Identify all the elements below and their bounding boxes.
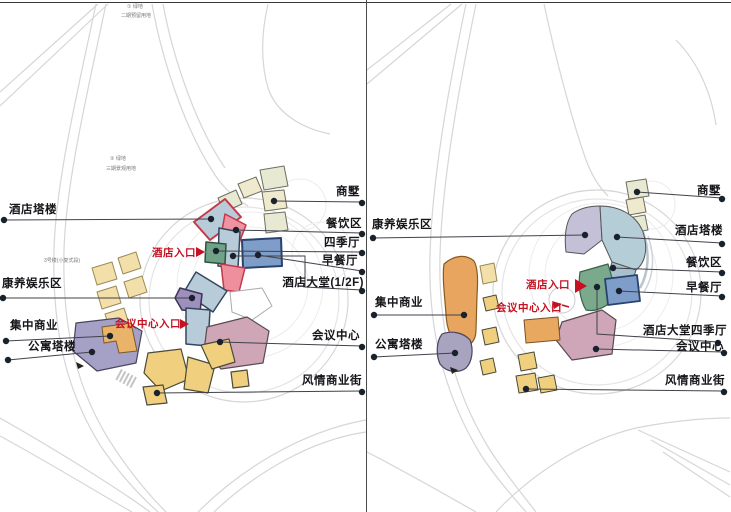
label-commercial-street: 风情商业街 bbox=[302, 375, 362, 387]
wellness-zone-building bbox=[565, 206, 602, 254]
street-shop bbox=[518, 352, 537, 371]
label-hotel-tower: 酒店塔楼 bbox=[675, 225, 723, 237]
label-wellness-zone: 康养娱乐区 bbox=[372, 219, 432, 231]
future-plot-outline bbox=[230, 288, 272, 320]
label-commercial-street: 风情商业街 bbox=[665, 375, 725, 387]
label-hotel-lobby-four-season: 酒店大堂四季厅 bbox=[643, 325, 727, 337]
breakfast-hall-building bbox=[242, 238, 282, 268]
site-note-line2: 三期景观用地 bbox=[106, 166, 136, 173]
hotel-pink-wing bbox=[221, 264, 245, 292]
label-central-commerce: 集中商业 bbox=[10, 320, 58, 332]
label-hotel-entrance: 酒店入口 bbox=[526, 277, 570, 292]
street-shop bbox=[480, 263, 497, 284]
street-shop bbox=[480, 358, 496, 375]
road-network bbox=[367, 4, 730, 512]
street-shop bbox=[144, 349, 189, 391]
site-note-line1: ② 绿地 bbox=[110, 156, 126, 163]
villa-block bbox=[626, 197, 646, 215]
wellness-villa bbox=[124, 276, 147, 298]
label-dining-zone: 餐饮区 bbox=[686, 257, 722, 269]
villa-block bbox=[238, 177, 262, 198]
label-conference-center: 会议中心 bbox=[676, 341, 724, 353]
label-conference-entrance: 会议中心入口 bbox=[496, 300, 562, 315]
villa-block bbox=[260, 166, 288, 190]
label-breakfast-hall: 早餐厅 bbox=[322, 255, 358, 267]
label-villas: 商墅 bbox=[697, 185, 721, 197]
label-wellness-note: 3号楼(小复式段) bbox=[44, 258, 80, 265]
label-four-season-hall: 四季厅 bbox=[324, 237, 360, 249]
street-shop bbox=[231, 370, 249, 388]
wellness-villa bbox=[118, 252, 141, 274]
wellness-villa bbox=[92, 262, 117, 285]
label-central-commerce: 集中商业 bbox=[375, 297, 423, 309]
top-note-line1: ① 绿地 bbox=[127, 4, 143, 11]
site-plan-left: 酒店塔楼 3号楼(小复式段) 康养娱乐区 集中商业 公寓塔楼 商墅 餐饮区 四季… bbox=[0, 0, 366, 512]
label-apartment-tower: 公寓塔楼 bbox=[375, 339, 423, 351]
label-dining-zone: 餐饮区 bbox=[326, 218, 362, 230]
site-plan-right: 康养娱乐区 集中商业 公寓塔楼 商墅 酒店塔楼 餐饮区 早餐厅 酒店大堂四季厅 … bbox=[366, 0, 731, 512]
panel-divider bbox=[366, 0, 367, 512]
street-shop bbox=[524, 317, 560, 343]
label-breakfast-hall: 早餐厅 bbox=[686, 282, 722, 294]
label-conference-center: 会议中心 bbox=[312, 330, 360, 342]
site-plan-right-drawing bbox=[366, 0, 731, 512]
label-hotel-lobby: 酒店大堂(1/2F) bbox=[282, 277, 364, 289]
villa-block bbox=[264, 212, 288, 233]
label-wellness-zone: 康养娱乐区 bbox=[2, 278, 62, 290]
street-shop bbox=[538, 375, 557, 393]
crosswalk bbox=[115, 369, 137, 388]
label-villas: 商墅 bbox=[336, 186, 360, 198]
label-conference-entrance: 会议中心入口 bbox=[115, 316, 181, 331]
street-shop bbox=[482, 327, 499, 345]
masterplan-comparison: 酒店塔楼 3号楼(小复式段) 康养娱乐区 集中商业 公寓塔楼 商墅 餐饮区 四季… bbox=[0, 0, 731, 512]
label-hotel-entrance: 酒店入口 bbox=[152, 245, 196, 260]
breakfast-hall-building bbox=[605, 275, 640, 305]
label-hotel-tower: 酒店塔楼 bbox=[9, 204, 57, 216]
label-apartment-tower: 公寓塔楼 bbox=[28, 341, 76, 353]
top-note-line2: 二期预留用地 bbox=[121, 13, 151, 20]
